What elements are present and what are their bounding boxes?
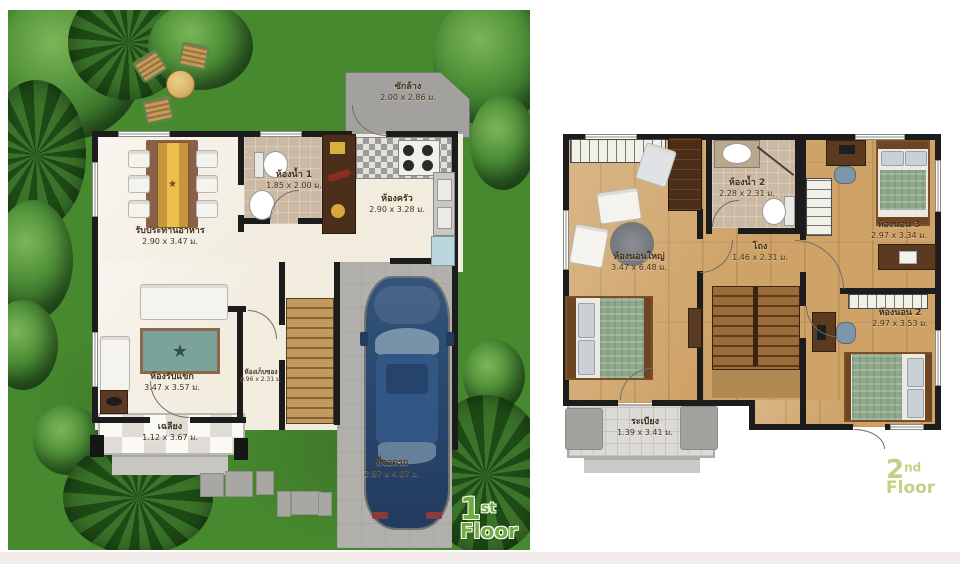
desk	[826, 140, 866, 166]
room-dims: 2.97 x 3.53 ม.	[872, 319, 928, 329]
balcony-planter	[680, 406, 718, 450]
wall-segment	[652, 400, 755, 406]
stair-rail	[753, 286, 758, 366]
room-name: ห้องนอน 3	[871, 220, 927, 231]
blanket	[600, 298, 644, 378]
wall-segment	[697, 209, 703, 239]
sink	[722, 143, 752, 164]
door-arc	[854, 429, 885, 449]
floor-word: Floor	[886, 480, 935, 496]
pillow	[578, 303, 595, 338]
window	[935, 330, 941, 386]
headboard	[925, 354, 932, 420]
stair-landing	[712, 370, 800, 398]
headboard	[567, 298, 576, 378]
master-bed	[565, 296, 653, 380]
window	[935, 160, 941, 212]
balcony-planter	[565, 408, 603, 450]
blanket	[852, 354, 902, 420]
wall-segment	[738, 228, 801, 234]
wardrobe	[848, 294, 928, 309]
balcony-step	[584, 458, 700, 473]
wall-segment	[706, 134, 712, 234]
desk-chair	[834, 166, 856, 184]
window	[563, 210, 569, 270]
room-name: ระเบียง	[617, 417, 673, 428]
toilet	[762, 198, 786, 225]
room-dims: 2.28 x 2.31 ม.	[719, 189, 775, 199]
room-name: ห้องนอน 2	[872, 308, 928, 319]
pillow	[881, 151, 904, 166]
blanket	[880, 170, 926, 210]
monitor	[839, 145, 855, 154]
wall-segment	[800, 338, 806, 430]
room-name: ห้องน้ำ 2	[719, 178, 775, 189]
bed	[876, 140, 930, 226]
bed	[844, 352, 932, 422]
scan-edge-strip	[0, 552, 960, 564]
room-label-hall: โถง 1.46 x 2.31 ม.	[732, 242, 788, 263]
floor-plan-image: ซักล้าง 2.00 x 2.86 ม.	[0, 0, 960, 564]
room-dims: 1.46 x 2.31 ม.	[732, 253, 788, 263]
room-label-bed2: ห้องนอน 2 2.97 x 3.53 ม.	[872, 308, 928, 329]
pillow	[905, 151, 927, 166]
closet	[668, 137, 702, 211]
room-label-balcony: ระเบียง 1.39 x 3.41 ม.	[617, 417, 673, 438]
laptop	[899, 251, 917, 264]
headboard	[878, 142, 928, 149]
room-label-bed3: ห้องนอน 3 2.97 x 3.34 ม.	[871, 220, 927, 241]
wall-segment	[800, 288, 806, 306]
room-name: ห้องนอนใหญ่	[611, 252, 667, 263]
desk	[878, 244, 936, 270]
room-dims: 2.97 x 3.34 ม.	[871, 231, 927, 241]
second-floor-plan: ห้องนอนใหญ่ 3.47 x 6.48 ม. ห้องน้ำ 2 2.2…	[0, 0, 960, 564]
room-label-master: ห้องนอนใหญ่ 3.47 x 6.48 ม.	[611, 252, 667, 273]
room-label-bath2: ห้องน้ำ 2 2.28 x 2.31 ม.	[719, 178, 775, 199]
room-dims: 3.47 x 6.48 ม.	[611, 263, 667, 273]
floor-ordinal: nd	[904, 461, 921, 475]
footboard	[846, 354, 851, 420]
armchair	[569, 223, 609, 268]
footboard	[644, 298, 651, 378]
room-name: โถง	[732, 242, 788, 253]
pillow	[578, 340, 595, 375]
dresser	[688, 308, 702, 348]
window	[890, 424, 924, 430]
floor2-tag: 2nd Floor	[886, 458, 935, 496]
pillow	[907, 358, 924, 387]
wardrobe	[806, 178, 832, 236]
wall-segment	[749, 400, 755, 430]
pillow	[907, 389, 924, 418]
desk-chair	[836, 322, 856, 344]
armchair	[596, 187, 642, 225]
wall-segment	[563, 400, 618, 406]
room-dims: 1.39 x 3.41 ม.	[617, 428, 673, 438]
